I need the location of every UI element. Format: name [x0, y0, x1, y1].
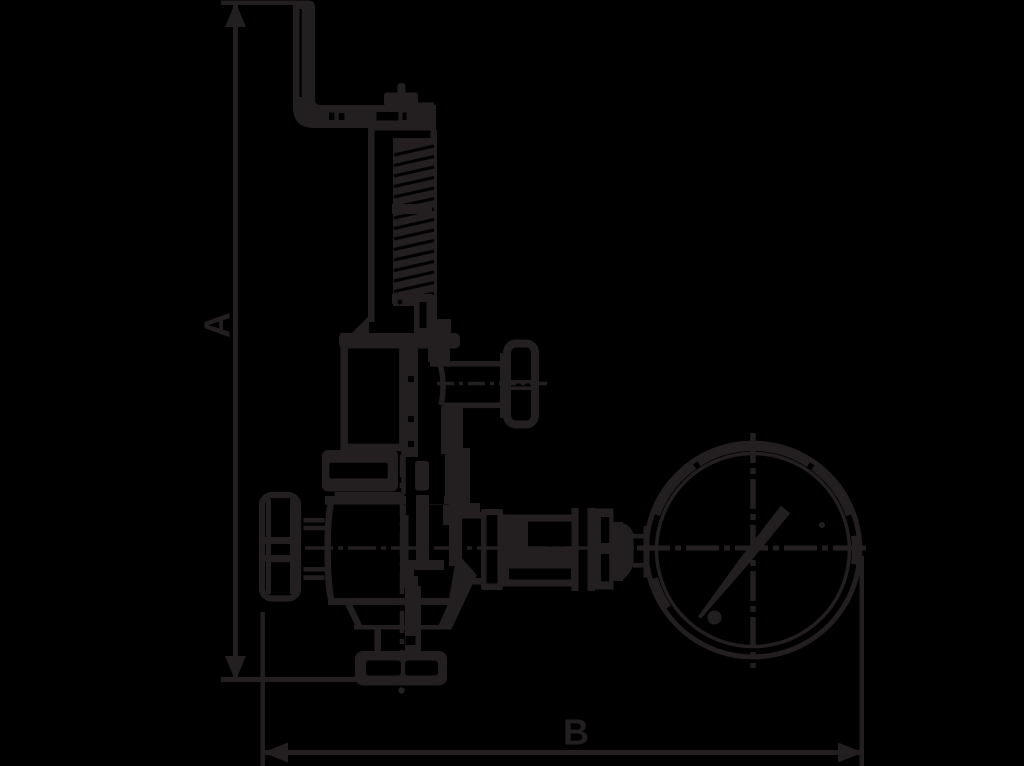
svg-text:B: B [563, 712, 589, 753]
svg-text:A: A [197, 312, 238, 338]
